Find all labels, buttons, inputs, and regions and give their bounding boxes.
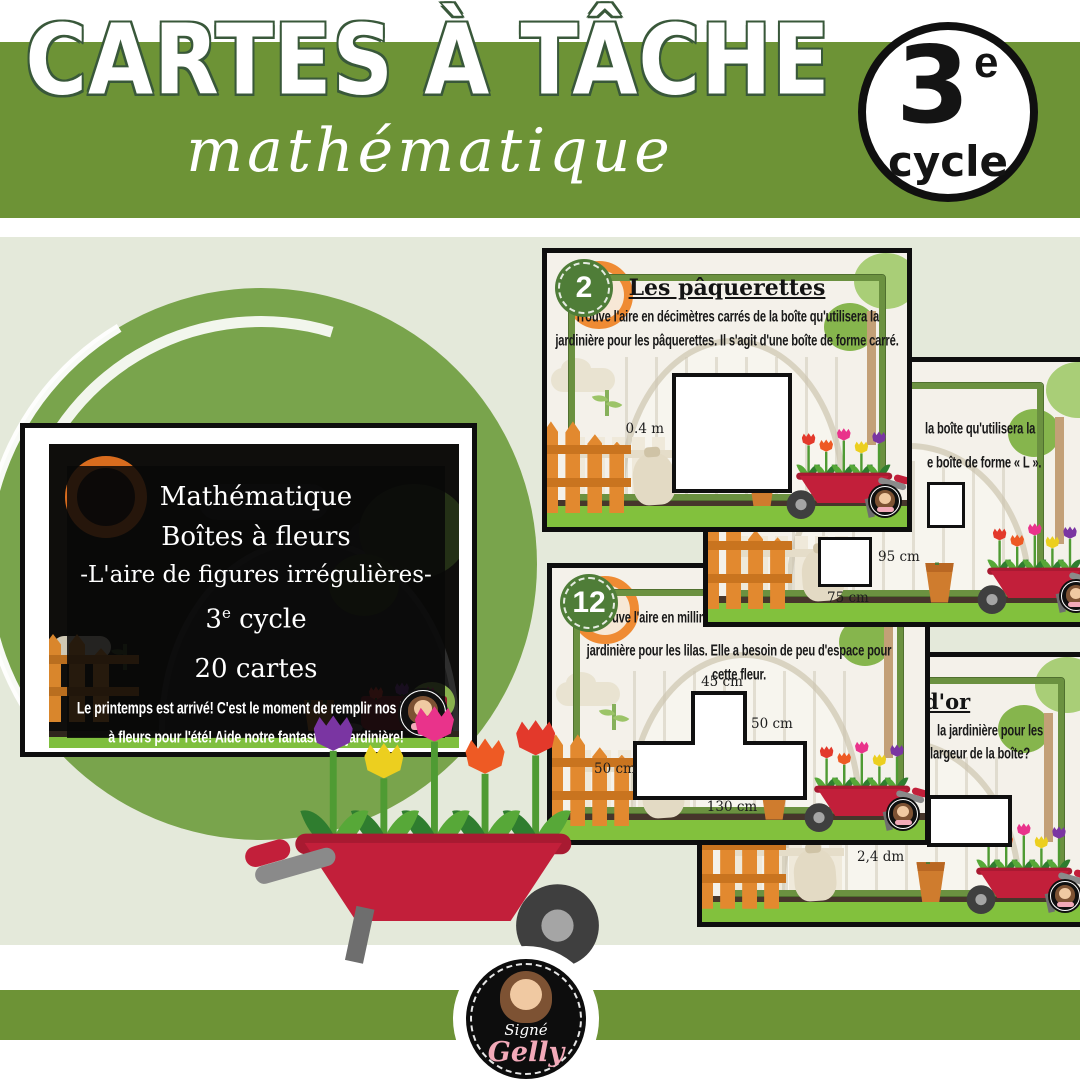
cover-text-block: Mathématique Boîtes à fleurs -L'aire de … (67, 466, 445, 738)
avatar-face (510, 979, 542, 1010)
card-12-line-2: jardinière pour les lilas. Elle a besoin… (586, 641, 891, 659)
cycle-badge: 3 e cycle (858, 22, 1038, 202)
card-2-figure-square (672, 373, 792, 493)
card-or-title-fragment: d'or (924, 689, 970, 714)
card-l-figure-bottom (818, 537, 872, 587)
card-12-label-right: 50 cm (751, 716, 793, 732)
signe-gelly-logo (870, 486, 900, 516)
cover-line-subject: Mathématique (67, 482, 445, 512)
card-or-text-fragment-2: largeur de la boîte? (930, 744, 1030, 762)
card-2-number: 2 (576, 271, 593, 305)
cover-card: Mathématique Boîtes à fleurs -L'aire de … (20, 423, 477, 757)
signe-gelly-logo (1050, 881, 1080, 911)
cycle-badge-number: 3 (896, 24, 970, 147)
cover-cycle-ordinal: e (222, 604, 231, 622)
cover-cycle-number: 3 (205, 605, 222, 635)
page-title: CARTES À TÂCHE (6, 2, 850, 118)
wheelbarrow-illustration (258, 736, 603, 968)
task-card-paquerettes: 2 Les pâquerettes Trouve l'aire en décim… (542, 248, 912, 532)
cycle-badge-ordinal: e (974, 38, 998, 88)
card-l-figure-top (927, 482, 965, 528)
wheelbarrow-icon (258, 737, 603, 967)
card-or-text-fragment-1: la jardinière pour les (937, 721, 1043, 739)
cycle-badge-word: cycle (866, 137, 1030, 186)
card-2-line-1: Trouve l'aire en décimètres carrés de la… (575, 307, 879, 325)
signe-gelly-logo (888, 799, 918, 829)
card-2-side-label: 0.4 m (592, 421, 664, 437)
header-gap-strip (0, 218, 1080, 237)
cover-line-count: 20 cartes (67, 654, 445, 684)
card-l-text-fragment-1: la boîte qu'utilisera la (925, 419, 1035, 437)
card-12-number-badge: 12 (560, 574, 618, 632)
card-2-line-2: jardinière pour les pâquerettes. Il s'ag… (555, 331, 898, 349)
card-2-number-badge: 2 (555, 259, 613, 317)
cover-line-title: Boîtes à fleurs (67, 522, 445, 552)
page-subtitle: mathématique (90, 116, 770, 186)
card-l-text-fragment-2: e boîte de forme « L ». (927, 453, 1041, 471)
card-l-label-right: 95 cm (878, 549, 920, 565)
cover-cycle-word: cycle (231, 605, 307, 635)
cover-line-topic: -L'aire de figures irrégulières- (67, 562, 445, 588)
card-12-label-bottom: 130 cm (698, 799, 766, 815)
card-12-figure (632, 686, 812, 804)
card-or-label: 2,4 dm (857, 849, 904, 865)
card-or-figure (927, 795, 1012, 847)
logo-text-gelly: Gelly (466, 1037, 586, 1068)
cover-line-cycle: 3e cycle (67, 604, 445, 635)
card-l-label-bottom: 75 cm (827, 590, 869, 606)
product-cover: CARTES À TÂCHE mathématique 3 e cycle la… (0, 0, 1080, 1080)
cover-caption-1: Le printemps est arrivé! C'est le moment… (77, 699, 435, 719)
signe-gelly-logo-large: Signé Gelly (466, 959, 586, 1079)
card-12-number: 12 (572, 586, 605, 620)
card-12-label-top: 45 cm (692, 674, 752, 690)
